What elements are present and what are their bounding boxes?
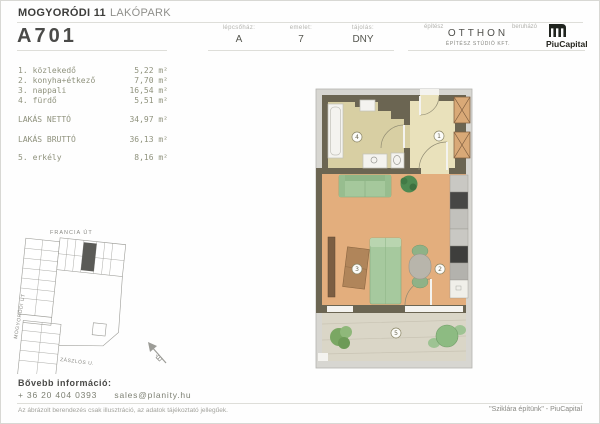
info-table-underline	[208, 50, 394, 51]
total-label: LAKÁS BRUTTÓ	[18, 135, 76, 145]
badge-room-4: 4	[352, 132, 362, 142]
room-name: 1.közlekedő	[18, 66, 76, 76]
room-row: 1.közlekedő 5,22 m²	[18, 66, 168, 76]
developer-logo: PiuCapital	[546, 23, 586, 49]
svg-text:1: 1	[437, 133, 441, 140]
developer-label: beruházó	[512, 24, 537, 30]
kitchen-counter	[450, 175, 468, 298]
contact-row: + 36 20 404 0393 sales@planity.hu	[18, 390, 191, 400]
north-label: É	[154, 353, 164, 363]
info-cell-staircase: lépcsőház: A	[208, 25, 270, 45]
balcony-row: 5.erkély 8,16 m²	[18, 153, 168, 163]
room-row: 4.fürdő 5,51 m²	[18, 96, 168, 106]
contact-heading: Bővebb információ:	[18, 378, 112, 388]
info-cell-orientation: tájolás: DNY	[332, 25, 394, 45]
plant	[401, 176, 418, 193]
architect-name: OTTHON	[438, 28, 518, 39]
site-plan: FRANCIA ÚT MOGYORÓDI ÚT ZÁSZLÓS U. É	[8, 222, 203, 374]
info-label: tájolás:	[332, 25, 394, 31]
developer-name: PiuCapital	[546, 39, 586, 49]
contact-phone: + 36 20 404 0393	[18, 390, 97, 400]
floorplan-sheet: MOGYORÓDI 11LAKÓPARK A701 lépcsőház: A e…	[0, 0, 600, 424]
site-building-outline	[12, 234, 128, 374]
project-title-light: LAKÓPARK	[110, 7, 171, 19]
badge-room-2: 2	[435, 264, 445, 274]
project-title-bold: MOGYORÓDI 11	[18, 7, 106, 19]
room-area: 16,54 m²	[129, 86, 168, 96]
architect-subtitle: ÉPÍTÉSZ STÚDIÓ KFT.	[438, 41, 518, 47]
room-area: 8,16 m²	[134, 153, 168, 163]
piucapital-column-icon	[546, 23, 568, 38]
dining-set	[409, 245, 431, 288]
header-divider	[17, 22, 583, 23]
svg-text:2: 2	[438, 266, 442, 273]
info-label: emelet:	[270, 25, 332, 31]
unit-code: A701	[17, 25, 77, 48]
entrance-opening	[420, 89, 439, 95]
street-label-top: FRANCIA ÚT	[50, 229, 93, 236]
bed	[370, 238, 401, 304]
unit-info-table: lépcsőház: A emelet: 7 tájolás: DNY	[208, 25, 394, 45]
street-label-bottom: ZÁSZLÓS U.	[60, 356, 95, 367]
room-row: 3.nappali 16,54 m²	[18, 86, 168, 96]
room-name: 4.fürdő	[18, 96, 57, 106]
info-label: lépcsőház:	[208, 25, 270, 31]
badge-room-5: 5	[391, 328, 401, 338]
badge-room-3: 3	[352, 264, 362, 274]
total-gross-row: LAKÁS BRUTTÓ 36,13 m²	[18, 135, 168, 145]
room-row: 2.konyha+étkező 7,70 m²	[18, 76, 168, 86]
svg-text:3: 3	[355, 266, 359, 273]
footer-slogan: "Sziklára építünk" - PiuCapital	[489, 406, 582, 413]
north-arrow-icon: É	[148, 342, 166, 363]
info-value: A	[208, 34, 270, 45]
svg-text:5: 5	[394, 330, 398, 337]
room-area: 5,51 m²	[134, 96, 168, 106]
total-net-row: LAKÁS NETTÓ 34,97 m²	[18, 115, 168, 125]
room-name: 5.erkély	[18, 153, 62, 163]
room-name: 3.nappali	[18, 86, 66, 96]
info-value: DNY	[332, 34, 394, 45]
room-list: 1.közlekedő 5,22 m² 2.konyha+étkező 7,70…	[18, 66, 168, 163]
footer-divider	[17, 403, 583, 404]
apartment-floor-plan: 4 1 3 2 5	[303, 80, 483, 378]
architect-underline	[408, 50, 585, 51]
contact-email: sales@planity.hu	[114, 390, 191, 400]
room-name: 2.konyha+étkező	[18, 76, 95, 86]
badge-room-1: 1	[434, 131, 444, 141]
unit-code-underline	[17, 50, 167, 51]
total-label: LAKÁS NETTÓ	[18, 115, 71, 125]
room-area: 5,22 m²	[134, 66, 168, 76]
svg-text:4: 4	[355, 134, 359, 141]
room-area: 7,70 m²	[134, 76, 168, 86]
total-area: 36,13 m²	[129, 135, 168, 145]
wardrobe	[328, 237, 335, 297]
total-area: 34,97 m²	[129, 115, 168, 125]
project-title: MOGYORÓDI 11LAKÓPARK	[18, 7, 171, 19]
info-cell-floor: emelet: 7	[270, 25, 332, 45]
washbasin	[363, 154, 387, 168]
info-value: 7	[270, 34, 332, 45]
washer	[360, 100, 375, 111]
footer-disclaimer: Az ábrázolt berendezés csak illusztráció…	[18, 407, 228, 414]
hallway-floor	[410, 95, 455, 168]
sofa	[339, 175, 391, 197]
